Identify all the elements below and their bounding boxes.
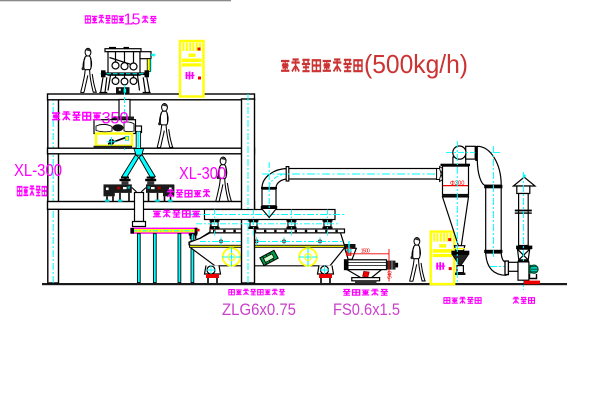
- svg-text:XL-300: XL-300: [179, 163, 226, 183]
- svg-text:1500: 1500: [361, 248, 370, 254]
- svg-text:1.5: 1.5: [124, 12, 141, 29]
- svg-text:ZLG6x0.75: ZLG6x0.75: [222, 300, 296, 319]
- svg-text:XL-300: XL-300: [14, 160, 62, 180]
- svg-text:350: 350: [102, 110, 129, 128]
- svg-text:(500kg/h): (500kg/h): [364, 49, 468, 79]
- svg-text:540: 540: [388, 271, 394, 279]
- svg-text:FS0.6x1.5: FS0.6x1.5: [333, 300, 400, 319]
